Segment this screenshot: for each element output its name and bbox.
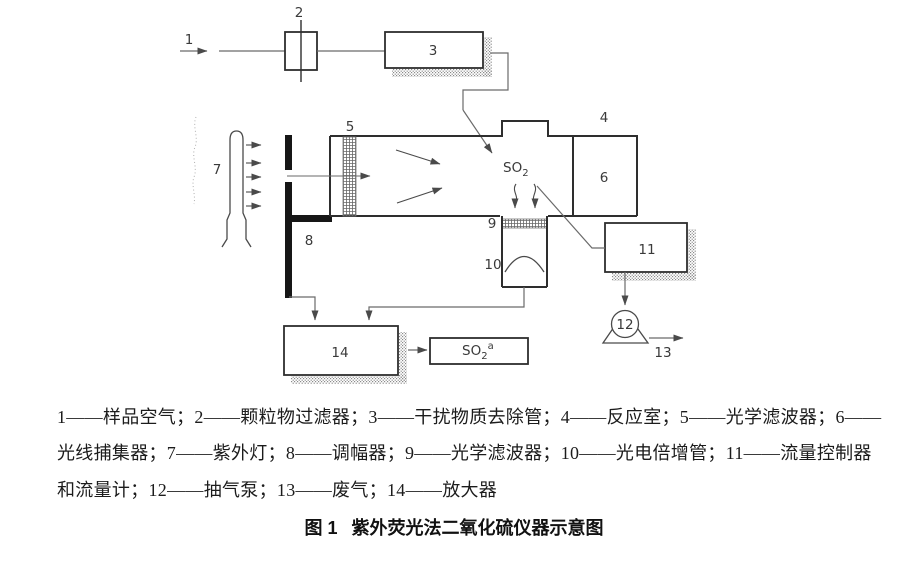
part-label-5: 5 [346,119,355,135]
part-label-6: 6 [600,170,609,186]
schematic-svg: 1 2 3 7 8 4 6 [0,0,908,395]
signal-pmt-to-14 [369,287,524,320]
dotted-texture [193,117,196,204]
so2-chamber-label: SO2 [503,160,529,179]
particle-filter [285,20,317,82]
uv-excitation-arrow [463,110,492,153]
part-label-1: 1 [185,32,194,48]
part-label-2: 2 [295,5,304,21]
part-label-9: 9 [488,216,497,232]
uv-lamp [222,131,251,247]
interference-removal-tube [385,32,492,77]
part-label-4: 4 [600,110,609,126]
part-label-8: 8 [305,233,314,249]
signal-chopper-to-14 [289,297,315,320]
pmt-dome [505,257,544,273]
legend: 1——样品空气；2——颗粒物过滤器；3——干扰物质去除管；4——反应室；5——光… [57,399,877,508]
chopper-modulator [285,135,333,298]
part-label-11: 11 [638,242,655,258]
part-label-14: 14 [331,345,348,361]
legend-line-1: 1——样品空气；2——颗粒物过滤器；3——干扰物质去除管；4——反应室；5——光… [57,399,877,435]
fluorescence-waves [514,184,535,208]
figure-number: 图 1 [304,518,337,538]
part-label-12: 12 [616,317,633,333]
part-label-13: 13 [654,345,671,361]
part-label-10: 10 [484,257,501,273]
legend-line-3: 和流量计；12——抽气泵；13——废气；14——放大器 [57,472,877,508]
reaction-chamber [330,121,637,216]
legend-line-2: 光线捕集器；7——紫外灯；8——调幅器；9——光学滤波器；10——光电倍增管；1… [57,435,877,471]
optical-filter-9 [502,219,547,228]
part-label-7: 7 [213,162,222,178]
scattered-light-arrows [396,150,442,203]
figure-caption: 图 1紫外荧光法二氧化硫仪器示意图 [0,514,908,540]
instrument-schematic: 1 2 3 7 8 4 6 [0,0,908,395]
lamp-ray-arrows [246,145,261,206]
figure-title: 紫外荧光法二氧化硫仪器示意图 [352,518,604,538]
part-label-3: 3 [429,43,438,59]
